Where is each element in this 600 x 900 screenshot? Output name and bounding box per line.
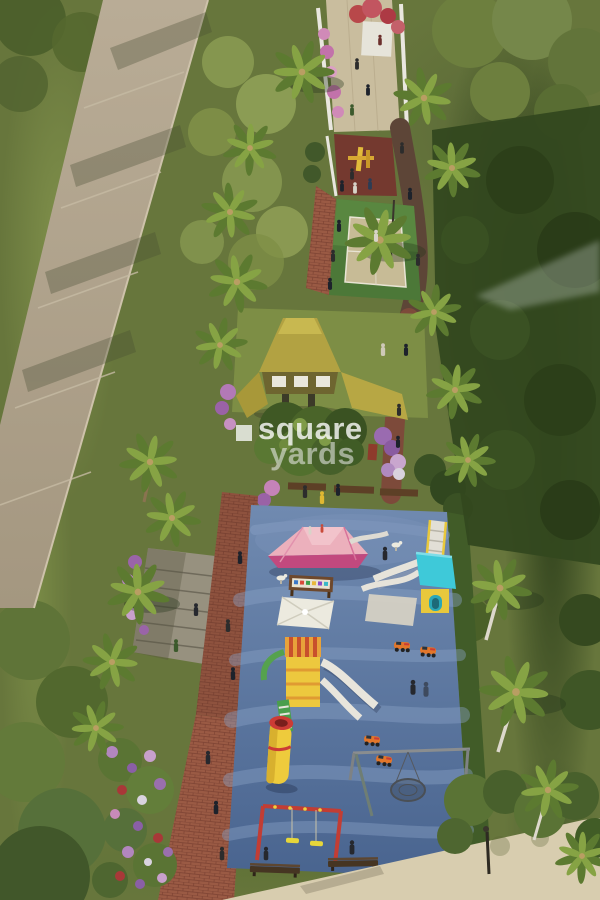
red-planter (367, 444, 377, 461)
bench (250, 863, 300, 878)
street-lamp (487, 832, 489, 874)
shade-canopy (277, 597, 334, 629)
sandbox-shade (365, 594, 417, 626)
park-scene (0, 0, 600, 900)
aerial-park-render: square yards (0, 0, 600, 900)
entrance-gate (361, 21, 393, 57)
outdoor-gym-pad (303, 134, 397, 196)
flower-bush (254, 402, 367, 476)
entrance-walkway (318, 0, 407, 132)
flower-garden-bottom (92, 738, 177, 898)
